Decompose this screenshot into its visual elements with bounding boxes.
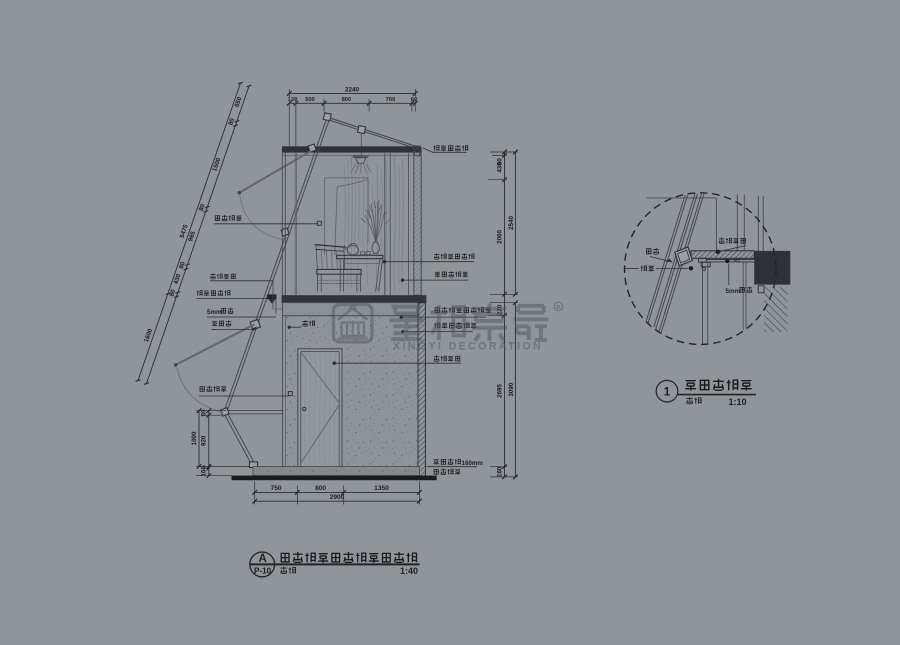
svg-text:1:40: 1:40 [400, 566, 418, 576]
svg-text:M3: M3 [734, 258, 741, 263]
svg-text:430: 430 [497, 162, 504, 173]
svg-text:A: A [258, 553, 266, 565]
svg-text:800: 800 [315, 485, 326, 492]
svg-text:2900: 2900 [330, 494, 345, 501]
svg-text:160: 160 [497, 466, 504, 477]
svg-text:750: 750 [271, 485, 282, 492]
svg-text:5mm: 5mm [207, 309, 222, 316]
svg-text:5: 5 [203, 465, 206, 470]
svg-text:3090: 3090 [508, 382, 515, 396]
svg-text:1:10: 1:10 [728, 397, 746, 407]
svg-text:2695: 2695 [497, 384, 504, 398]
svg-text:500: 500 [305, 97, 315, 103]
svg-text:160mm: 160mm [462, 460, 484, 467]
svg-text:2060: 2060 [497, 230, 504, 244]
svg-text:XINGYI DECORATION: XINGYI DECORATION [393, 340, 543, 352]
svg-text:1350: 1350 [374, 485, 389, 492]
svg-text:P-10: P-10 [254, 566, 272, 575]
svg-text:800: 800 [342, 97, 352, 103]
svg-text:920: 920 [200, 435, 207, 446]
svg-text:2540: 2540 [508, 216, 515, 230]
svg-text:760: 760 [386, 97, 396, 103]
svg-text:5mm: 5mm [726, 288, 741, 295]
svg-text:R: R [556, 304, 561, 311]
svg-text:1: 1 [664, 386, 671, 398]
svg-text:1000: 1000 [191, 431, 198, 445]
svg-text:2240: 2240 [345, 86, 360, 93]
